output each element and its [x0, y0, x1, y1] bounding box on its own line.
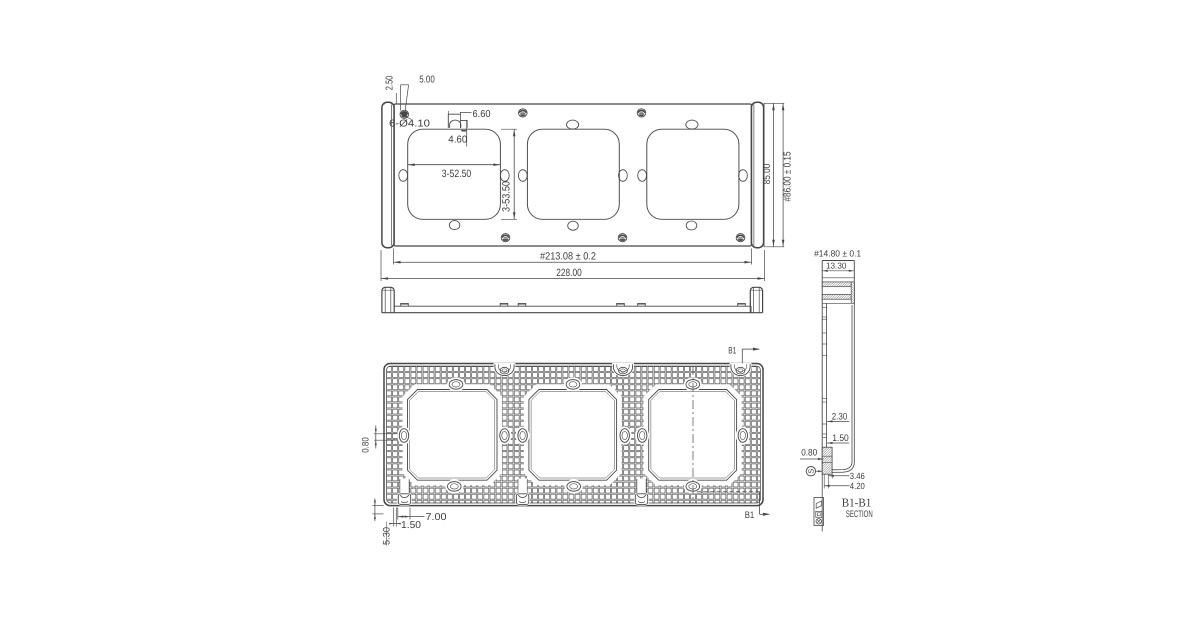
- svg-text:2.50: 2.50: [385, 75, 396, 90]
- svg-text:1.50: 1.50: [401, 520, 421, 531]
- svg-text:S: S: [806, 469, 815, 474]
- svg-text:13.30: 13.30: [826, 261, 847, 271]
- svg-text:#86.00 ± 0.15: #86.00 ± 0.15: [783, 151, 794, 201]
- svg-text:7.00: 7.00: [426, 512, 447, 523]
- svg-text:3-53.50: 3-53.50: [501, 181, 513, 212]
- svg-text:B1-B1: B1-B1: [842, 496, 872, 510]
- svg-text:3.46: 3.46: [850, 471, 865, 481]
- svg-text:#213.08 ± 0.2: #213.08 ± 0.2: [540, 251, 596, 263]
- svg-text:0.80: 0.80: [361, 437, 372, 453]
- svg-text:4.20: 4.20: [850, 481, 865, 491]
- svg-text:B1: B1: [728, 345, 736, 356]
- svg-text:6.60: 6.60: [473, 109, 491, 120]
- svg-text:4.60: 4.60: [448, 135, 467, 146]
- svg-text:85.00: 85.00: [762, 163, 773, 184]
- svg-text:0.80: 0.80: [801, 448, 817, 459]
- svg-text:2.30: 2.30: [832, 411, 848, 422]
- svg-text:228.00: 228.00: [556, 267, 582, 279]
- svg-text:#14.80 ± 0.1: #14.80 ± 0.1: [814, 249, 861, 259]
- svg-text:1.50: 1.50: [832, 433, 849, 444]
- svg-text:5.00: 5.00: [419, 75, 435, 86]
- svg-text:5.30: 5.30: [382, 527, 393, 545]
- svg-text:3-52.50: 3-52.50: [442, 168, 472, 180]
- svg-text:SECTION: SECTION: [846, 509, 873, 520]
- svg-text:B1: B1: [745, 510, 755, 521]
- svg-text:6-Ø4.10: 6-Ø4.10: [389, 118, 430, 129]
